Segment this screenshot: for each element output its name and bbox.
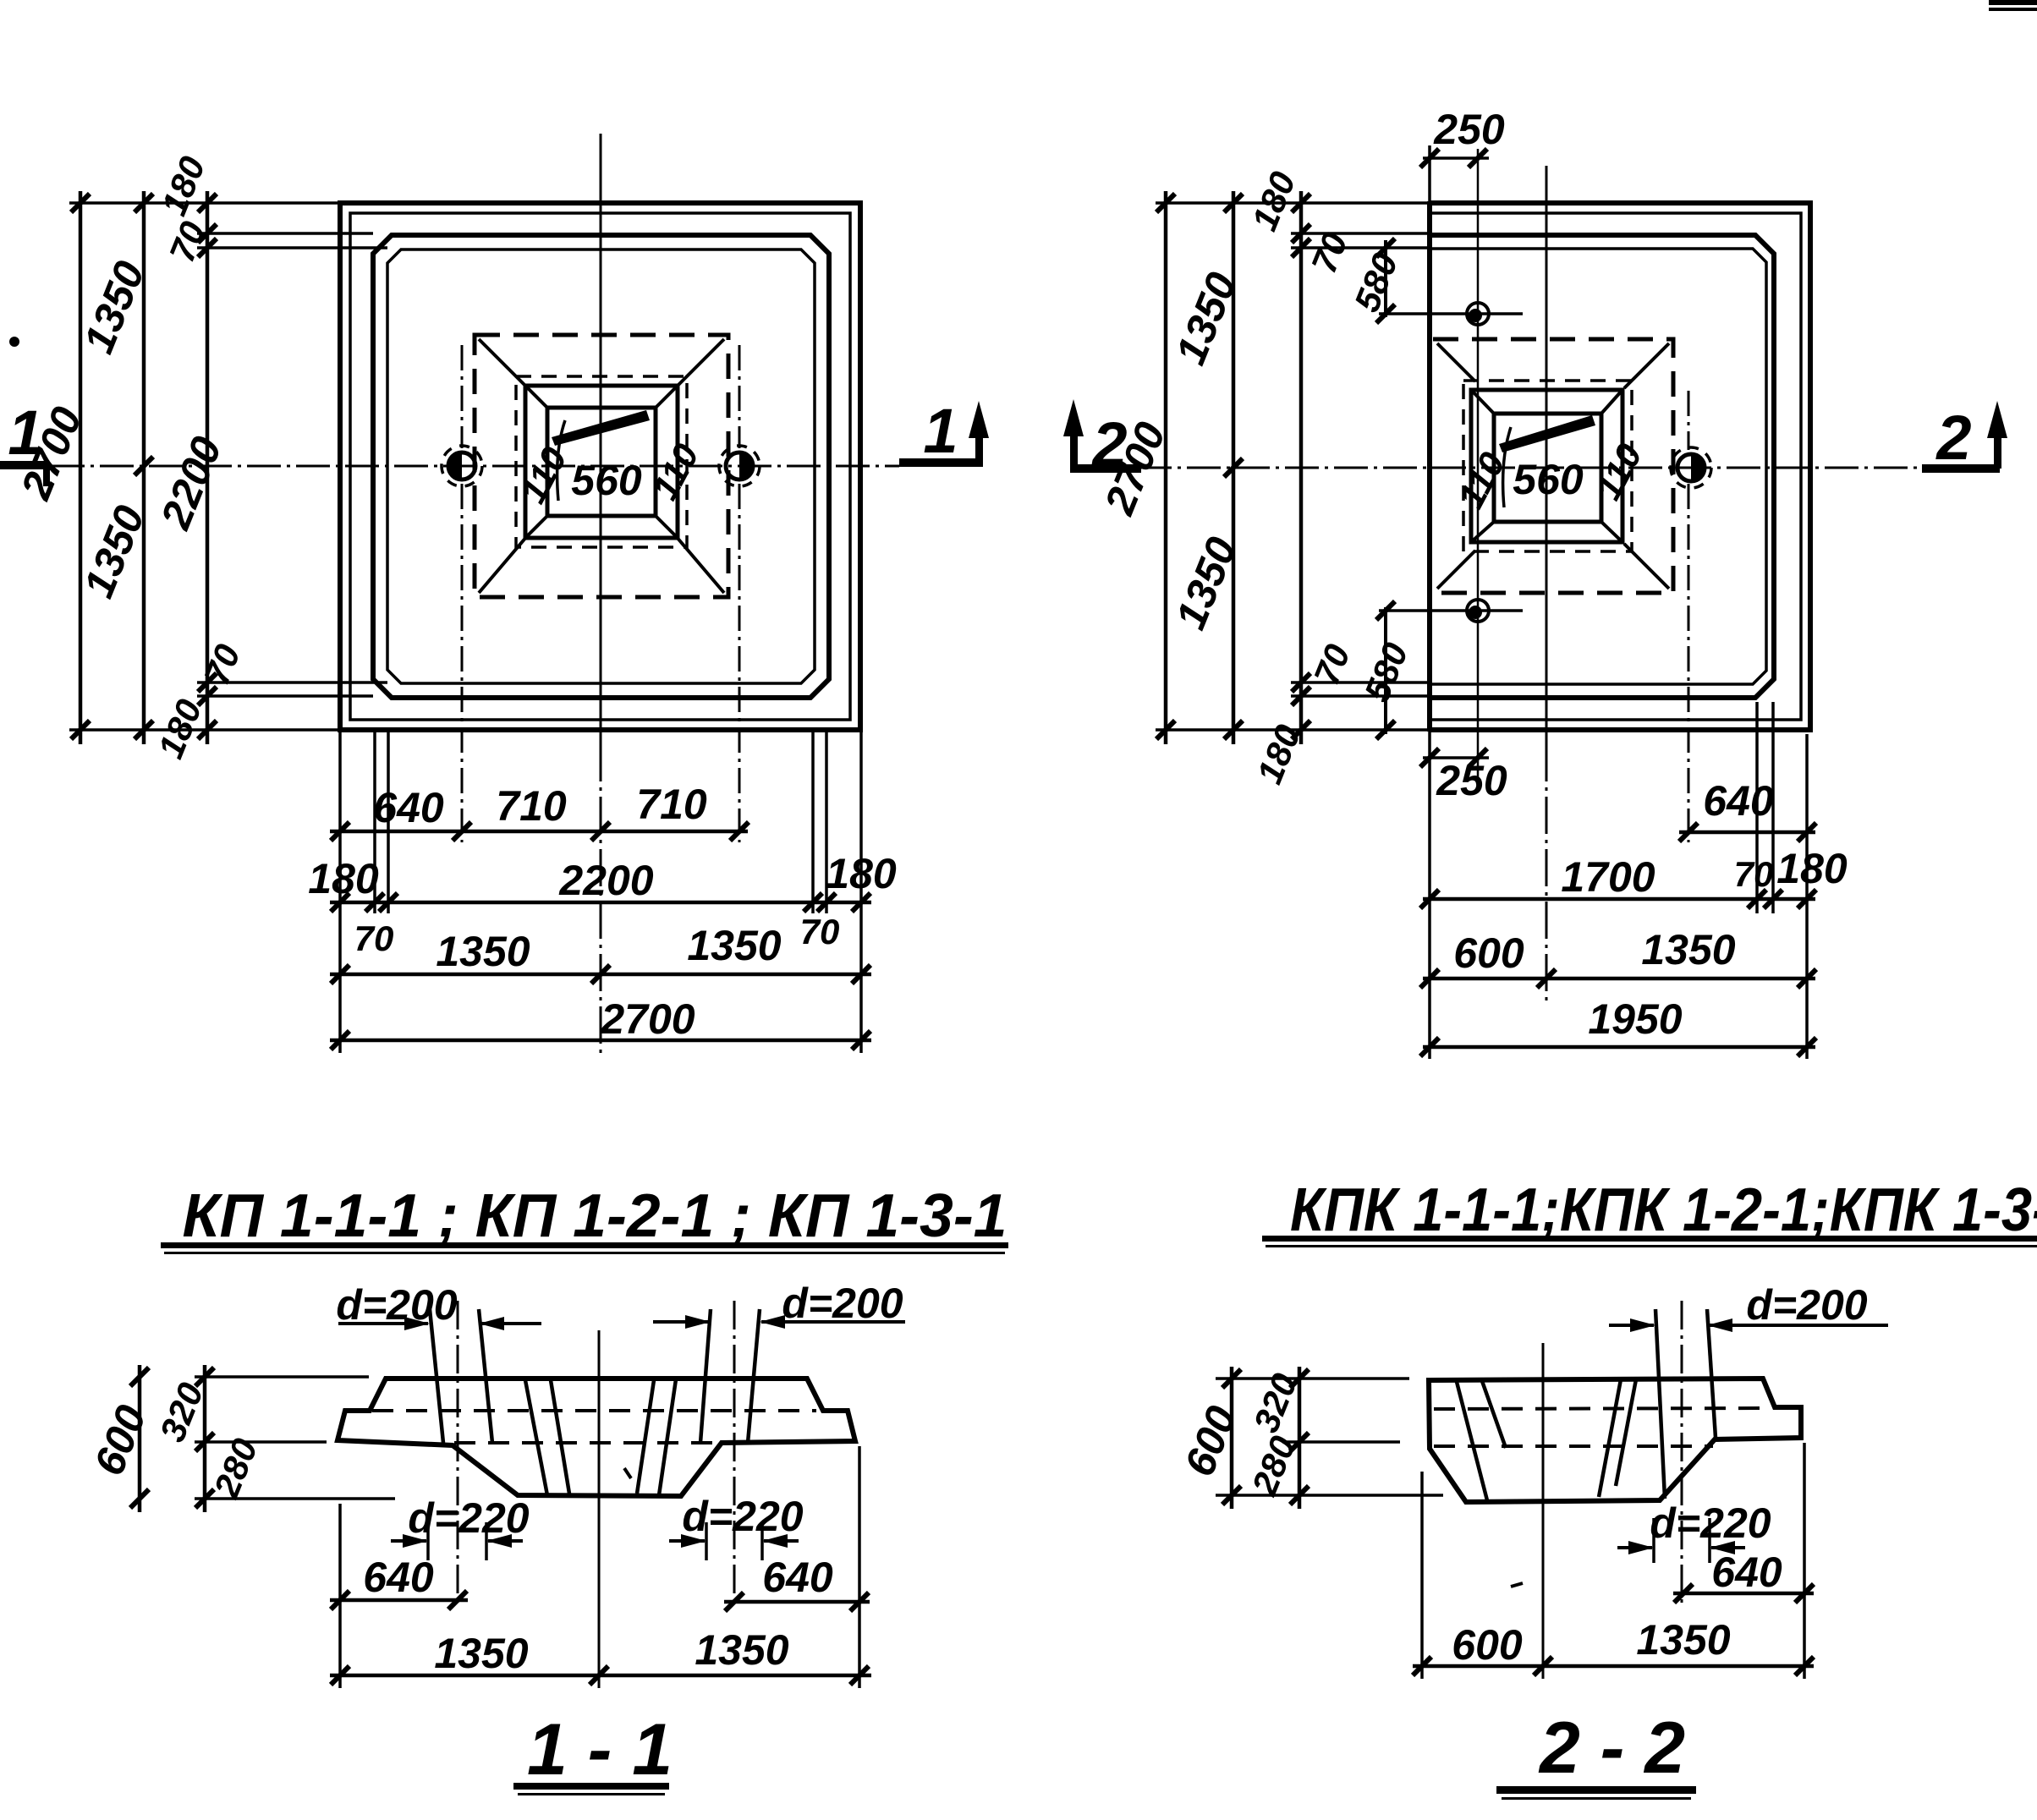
svg-text:1350: 1350 bbox=[1641, 926, 1735, 973]
svg-text:640: 640 bbox=[762, 1554, 833, 1601]
svg-text:1350: 1350 bbox=[434, 1630, 528, 1677]
svg-text:180: 180 bbox=[1776, 845, 1848, 892]
svg-text:КПК 1-1-1;КПК 1-2-1;КПК 1-3-1: КПК 1-1-1;КПК 1-2-1;КПК 1-3-1 bbox=[1290, 1176, 2037, 1244]
svg-text:560: 560 bbox=[1513, 456, 1584, 503]
svg-text:70: 70 bbox=[354, 918, 394, 958]
svg-text:2200: 2200 bbox=[558, 857, 653, 904]
svg-text:2: 2 bbox=[1935, 403, 1971, 473]
svg-text:1 - 1: 1 - 1 bbox=[527, 1709, 673, 1790]
svg-text:640: 640 bbox=[1703, 777, 1774, 825]
svg-text:250: 250 bbox=[1433, 106, 1505, 153]
svg-text:d=200: d=200 bbox=[1746, 1281, 1867, 1329]
svg-text:1350: 1350 bbox=[1636, 1616, 1730, 1664]
svg-text:2 - 2: 2 - 2 bbox=[1538, 1708, 1685, 1789]
svg-text:640: 640 bbox=[1711, 1549, 1782, 1596]
svg-text:70: 70 bbox=[800, 912, 840, 951]
svg-text:600: 600 bbox=[1453, 929, 1524, 977]
svg-text:1350: 1350 bbox=[687, 922, 781, 969]
svg-text:560: 560 bbox=[571, 457, 642, 504]
svg-text:180: 180 bbox=[308, 855, 379, 902]
svg-text:710: 710 bbox=[496, 782, 567, 830]
svg-text:d=220: d=220 bbox=[682, 1493, 803, 1540]
svg-text:710: 710 bbox=[636, 781, 707, 828]
svg-text:1350: 1350 bbox=[695, 1626, 788, 1674]
svg-text:640: 640 bbox=[373, 784, 444, 831]
svg-text:1950: 1950 bbox=[1588, 995, 1682, 1043]
svg-text:640: 640 bbox=[363, 1554, 434, 1601]
svg-text:1350: 1350 bbox=[436, 928, 530, 975]
svg-text:КП 1-1-1 ; КП 1-2-1 ; КП 1-3-1: КП 1-1-1 ; КП 1-2-1 ; КП 1-3-1 bbox=[183, 1182, 1008, 1250]
svg-text:2700: 2700 bbox=[600, 995, 695, 1043]
svg-text:180: 180 bbox=[826, 850, 897, 897]
svg-text:70: 70 bbox=[1734, 854, 1774, 894]
svg-text:600: 600 bbox=[1452, 1621, 1523, 1669]
svg-text:1: 1 bbox=[923, 396, 958, 466]
svg-text:1700: 1700 bbox=[1561, 853, 1655, 901]
svg-text:250: 250 bbox=[1436, 757, 1507, 804]
svg-text:d=200: d=200 bbox=[336, 1281, 457, 1329]
svg-text:d=200: d=200 bbox=[782, 1280, 903, 1327]
